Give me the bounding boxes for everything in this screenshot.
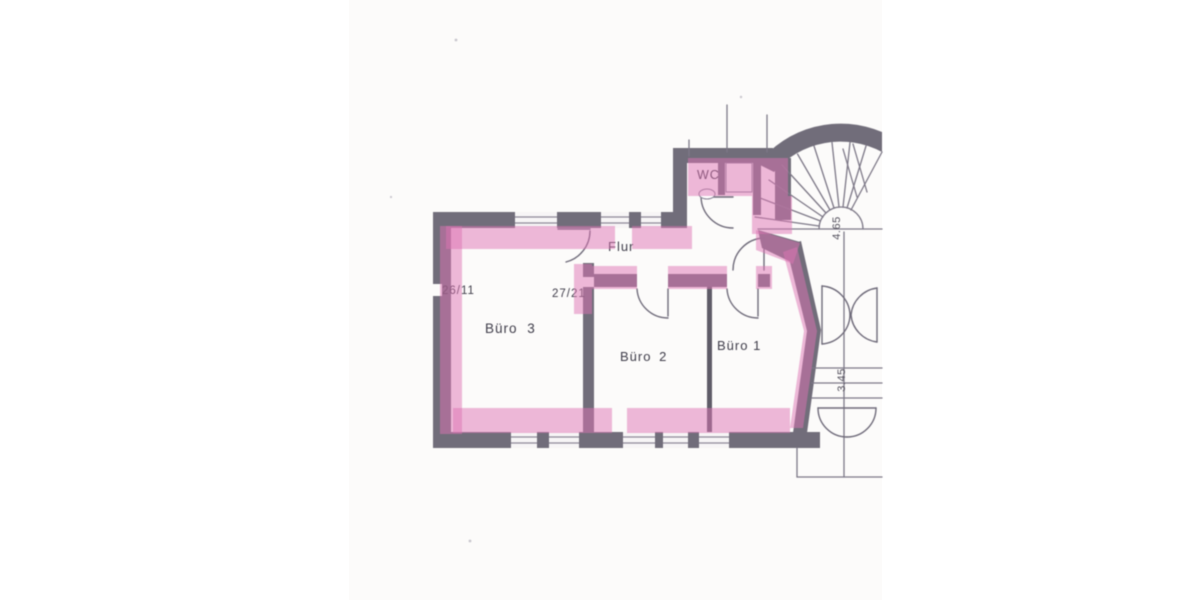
double-door-landing-south [818,408,876,437]
window [696,432,732,448]
window [512,212,560,228]
window [508,432,540,448]
dimension-label-4-65: 4.65 [831,216,843,239]
walls [433,124,882,448]
room-label-buero1: Büro 1 [717,338,761,353]
window [620,432,658,448]
scanned-floor-plan-page: WC Flur Büro 3 Büro 2 Büro 1 26/11 27/21… [0,0,1200,600]
window [660,432,691,448]
door-buero2 [637,289,668,318]
double-door-landing-east [822,286,877,344]
highlighter-marking [440,158,817,434]
room-label-buero3: Büro 3 [485,321,536,336]
window [638,212,664,228]
room-label-buero2: Büro 2 [620,349,667,364]
window [598,212,632,228]
door-buero1 [727,289,758,318]
dimension-label-3-45: 3.45 [836,368,848,391]
door-wc [701,197,733,228]
window [546,432,582,448]
floor-plan-drawing: WC Flur Büro 3 Büro 2 Büro 1 26/11 27/21… [0,0,1200,600]
